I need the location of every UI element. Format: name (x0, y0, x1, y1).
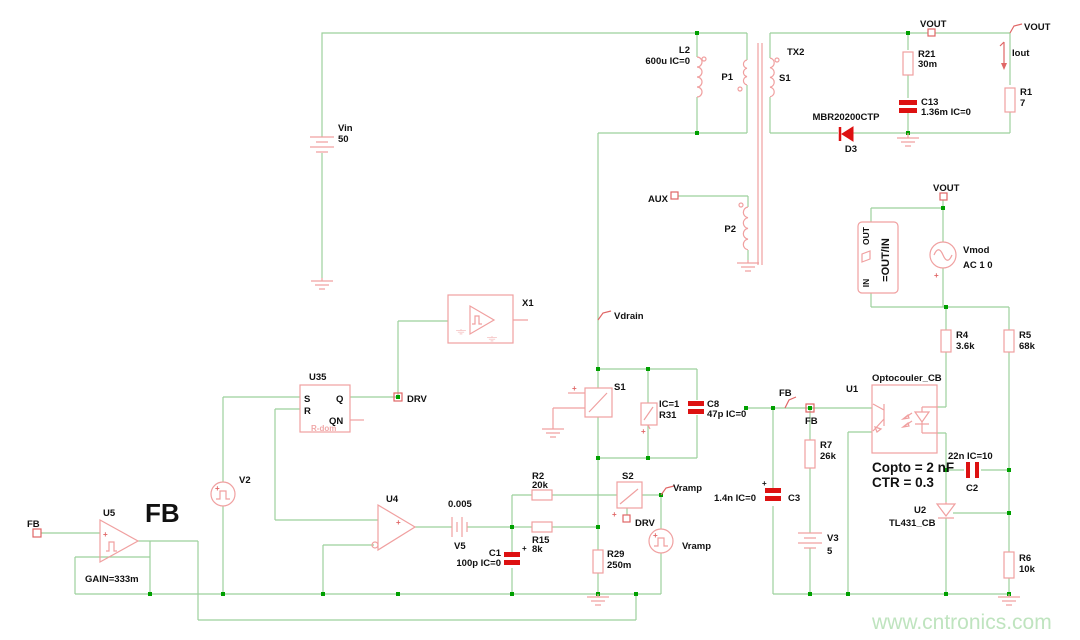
label-u35-rdom: R-dom (311, 424, 336, 433)
label-v2: V2 (239, 475, 251, 486)
label-c3-name: C3 (788, 493, 800, 504)
label-u5-plus: + (103, 530, 108, 539)
opamp-u4 (372, 505, 415, 550)
ground-output (897, 133, 919, 146)
label-tx2: TX2 (787, 47, 804, 58)
label-r29-name: R29 (607, 549, 624, 560)
battery-v5 (452, 517, 467, 537)
label-c2-value: 22n IC=10 (948, 451, 993, 462)
resistor-r5 (1004, 330, 1014, 352)
label-vramp-flag: Vramp (673, 483, 702, 494)
label-r31-name: R31 (659, 410, 677, 421)
label-v5-value: 0.005 (448, 499, 472, 510)
label-u5-name: U5 (103, 508, 116, 519)
label-r29-value: 250m (607, 560, 631, 571)
label-outin-in: IN (861, 279, 871, 288)
label-vdrain: Vdrain (614, 311, 644, 322)
label-u35-name: U35 (309, 372, 327, 383)
label-outin-out: OUT (861, 226, 871, 245)
label-c13-value: 1.36m IC=0 (921, 107, 971, 118)
transformer-aux-p2 (739, 203, 748, 250)
drv-port-icon (623, 515, 630, 522)
label-v3-value: 5 (827, 546, 833, 557)
resistor-r1 (1005, 88, 1015, 112)
label-c3-plus: + (762, 479, 767, 488)
schematic-canvas: Vin 50 L2 600u IC=0 P1 TX2 S1 AUX P2 VOU… (0, 0, 1080, 640)
tl431-u2 (937, 502, 955, 518)
capacitor-c2 (966, 462, 979, 478)
inductor-l2 (697, 57, 706, 97)
label-drv-flag: DRV (635, 518, 656, 529)
label-x1: X1 (522, 298, 534, 309)
label-r6-value: 10k (1019, 564, 1036, 575)
nonlinear-resistor-r31 (641, 403, 657, 429)
resistor-r2 (532, 490, 552, 500)
label-vin-name: Vin (338, 123, 353, 134)
label-vout-mid: VOUT (933, 183, 960, 194)
switch-s2 (617, 482, 642, 508)
buffer-x1 (448, 295, 528, 343)
fb-left-port-icon (33, 529, 41, 537)
label-vout-top: VOUT (920, 19, 947, 30)
current-probe-iout (1000, 42, 1007, 70)
label-c2-name: C2 (966, 483, 978, 494)
vdrain-flag-icon (598, 311, 611, 320)
optocoupler-u1 (872, 385, 937, 453)
resistor-r29 (593, 550, 603, 573)
junction-dots (148, 31, 1011, 596)
label-r1-value: 7 (1020, 98, 1025, 109)
label-v2-plus: + (215, 484, 220, 493)
resistor-r6 (1004, 552, 1014, 578)
capacitor-c13 (899, 100, 917, 113)
port-squares (33, 29, 947, 537)
watermark: www.cntronics.com (871, 611, 1052, 634)
aux-port-icon (671, 192, 678, 199)
transformer-core (758, 43, 762, 265)
label-opto-name: Optocouler_CB (872, 373, 942, 384)
label-c1-plus: + (522, 544, 527, 553)
label-v5-name: V5 (454, 541, 466, 552)
ground-s1pin (542, 426, 564, 437)
label-r5-name: R5 (1019, 330, 1032, 341)
label-r6-name: R6 (1019, 553, 1031, 564)
battery-v3 (798, 533, 822, 548)
vout-right-flag-icon (1010, 24, 1022, 33)
vout-mid-port-icon (940, 193, 947, 200)
resistor-r21 (903, 52, 913, 75)
label-r7-value: 26k (820, 451, 837, 462)
label-fb-big: FB (145, 498, 180, 528)
label-aux: AUX (648, 194, 669, 205)
ground-vin (311, 278, 333, 289)
junction-squares (148, 31, 1011, 596)
label-iout: Iout (1012, 48, 1030, 59)
label-r4-value: 3.6k (956, 341, 975, 352)
component-symbols (100, 43, 1020, 605)
capacitor-c1 (504, 552, 520, 565)
label-r1-name: R1 (1020, 87, 1033, 98)
resistor-r7 (805, 440, 815, 468)
label-r31-ic: IC=1 (659, 399, 680, 410)
label-r2-value: 20k (532, 480, 549, 491)
label-fb-node: FB (805, 416, 818, 427)
label-s1-winding: S1 (779, 73, 791, 84)
label-s1-switch: S1 (614, 382, 626, 393)
label-s2-plus: + (612, 510, 617, 519)
diode-d3 (840, 127, 853, 141)
label-u4-name: U4 (386, 494, 399, 505)
resistor-r15 (532, 522, 552, 532)
label-u35-s: S (304, 394, 310, 405)
label-l2-name: L2 (679, 45, 690, 56)
transformer-primary-p1 (738, 60, 747, 91)
label-vout-right: VOUT (1024, 22, 1051, 33)
label-p1: P1 (721, 72, 733, 83)
label-fb-flag: FB (779, 388, 792, 399)
label-d3-name: D3 (845, 144, 857, 155)
opamp-u5 (100, 520, 138, 562)
label-ctr: CTR = 0.3 (872, 475, 934, 490)
label-u2-name: U2 (914, 505, 926, 516)
schematic-page: Vin 50 L2 600u IC=0 P1 TX2 S1 AUX P2 VOU… (0, 0, 1080, 640)
label-drv-node: DRV (407, 394, 428, 405)
label-c3-value: 1.4n IC=0 (714, 493, 756, 504)
label-vmod-name: Vmod (963, 245, 990, 256)
label-vmod-plus: + (934, 271, 939, 280)
label-vin-value: 50 (338, 134, 349, 145)
battery-vin (310, 137, 334, 152)
label-r7-name: R7 (820, 440, 832, 451)
label-u4-plus: + (396, 518, 401, 527)
label-c1-value: 100p IC=0 (456, 558, 501, 569)
label-r31-plus: + (641, 427, 646, 436)
label-u2-part: TL431_CB (889, 518, 936, 529)
ground-r29 (587, 594, 609, 605)
label-vmod-value: AC 1 0 (963, 260, 993, 271)
label-vramp-src: Vramp (682, 541, 711, 552)
label-r5-value: 68k (1019, 341, 1036, 352)
ground-r6 (998, 594, 1020, 605)
ground-p2 (737, 260, 759, 271)
label-vramp-plus: + (653, 531, 658, 540)
label-fb-port: FB (27, 519, 40, 530)
resistor-r4 (941, 330, 951, 352)
label-gain: GAIN=333m (85, 574, 139, 585)
label-r15-value: 8k (532, 544, 543, 555)
label-r4-name: R4 (956, 330, 969, 341)
source-vmod (930, 242, 956, 268)
capacitor-c8 (688, 401, 704, 414)
label-s1-plus: + (572, 384, 577, 393)
label-r21-value: 30m (918, 59, 937, 70)
switch-s1 (553, 388, 612, 426)
label-v3-name: V3 (827, 533, 839, 544)
label-u35-r: R (304, 406, 311, 417)
transformer-secondary-s1 (770, 58, 779, 97)
label-p2: P2 (724, 224, 736, 235)
capacitor-c3 (765, 488, 781, 501)
label-u1: U1 (846, 384, 859, 395)
label-c8-value: 47p IC=0 (707, 409, 746, 420)
label-d3-part: MBR20200CTP (812, 112, 880, 123)
label-s2-name: S2 (622, 471, 634, 482)
label-outin-eq: =OUT/IN (880, 238, 892, 282)
vout-top-port-icon (928, 29, 935, 36)
label-l2-value: 600u IC=0 (645, 56, 690, 67)
label-copto: Copto = 2 nF (872, 460, 954, 475)
label-u35-q: Q (336, 394, 343, 405)
